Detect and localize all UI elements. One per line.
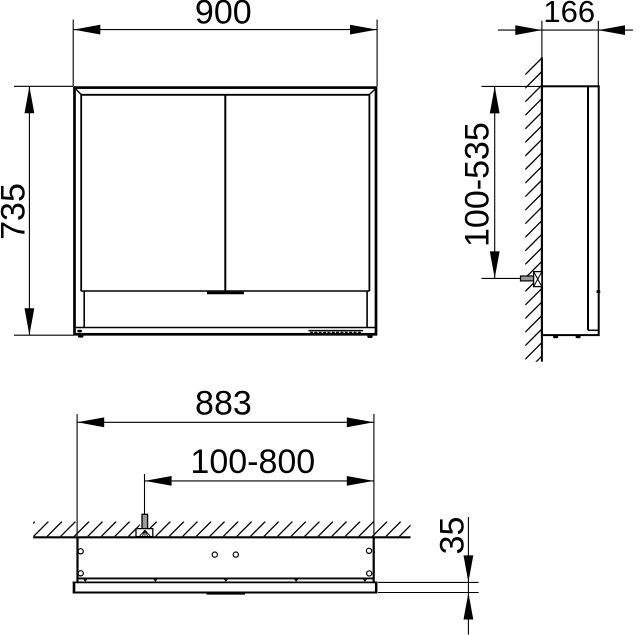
svg-text:883: 883 (195, 385, 252, 423)
svg-text:900: 900 (195, 0, 252, 32)
svg-text:166: 166 (543, 0, 595, 29)
svg-text:35: 35 (434, 517, 472, 555)
svg-text:100-800: 100-800 (190, 443, 315, 481)
svg-text:100-535: 100-535 (459, 122, 497, 247)
svg-text:735: 735 (0, 183, 33, 240)
